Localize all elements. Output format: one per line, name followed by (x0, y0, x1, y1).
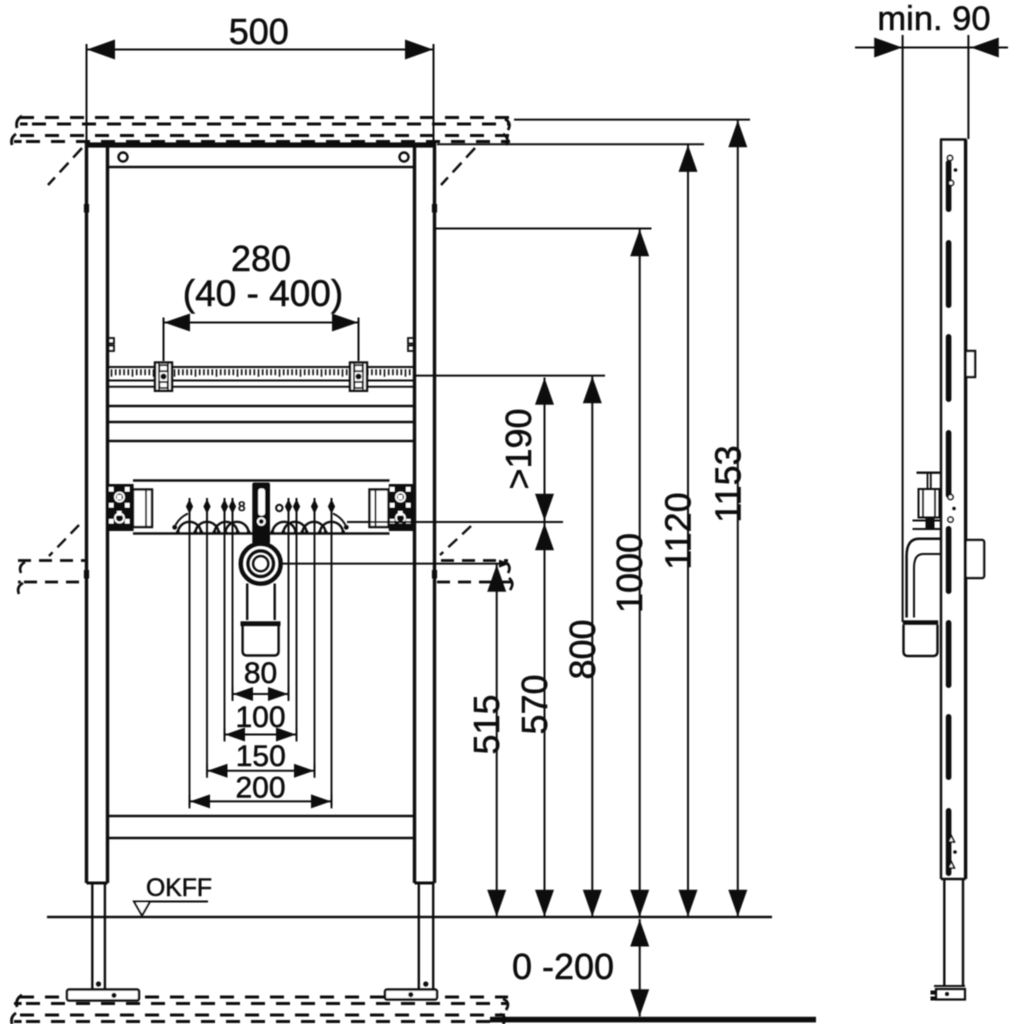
svg-text:80: 80 (244, 657, 277, 690)
svg-text:200: 200 (235, 772, 285, 805)
svg-text:150: 150 (236, 740, 286, 773)
svg-text:500: 500 (229, 11, 289, 52)
svg-text:(40 - 400): (40 - 400) (183, 273, 343, 314)
svg-text:>190: >190 (498, 408, 539, 489)
svg-text:min. 90: min. 90 (877, 0, 990, 38)
svg-text:570: 570 (514, 674, 555, 734)
svg-text:1153: 1153 (707, 445, 748, 522)
svg-text:515: 515 (466, 694, 507, 754)
svg-text:8: 8 (238, 499, 246, 514)
svg-text:OKFF: OKFF (146, 875, 212, 902)
svg-text:0 -200: 0 -200 (512, 946, 614, 987)
svg-text:1000: 1000 (609, 533, 650, 613)
svg-text:100: 100 (235, 701, 285, 734)
svg-text:800: 800 (562, 619, 603, 679)
svg-text:1120: 1120 (658, 492, 699, 569)
